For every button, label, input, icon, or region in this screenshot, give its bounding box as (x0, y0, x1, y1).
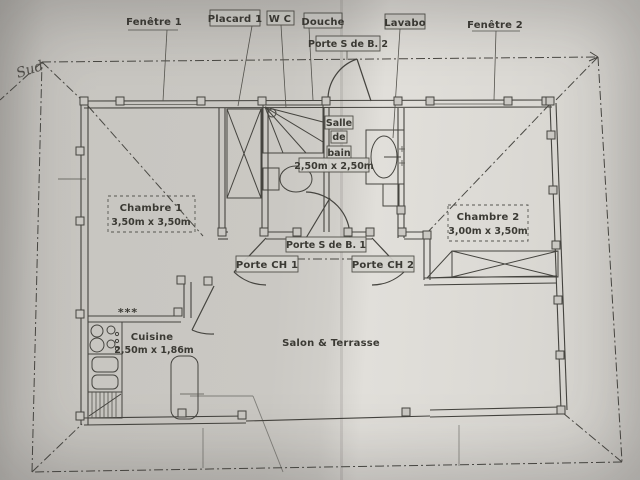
photo-vignette (0, 0, 640, 480)
floor-plan-photo: Fenêtre 1 Placard 1 W C Douche Porte S d… (0, 0, 640, 480)
